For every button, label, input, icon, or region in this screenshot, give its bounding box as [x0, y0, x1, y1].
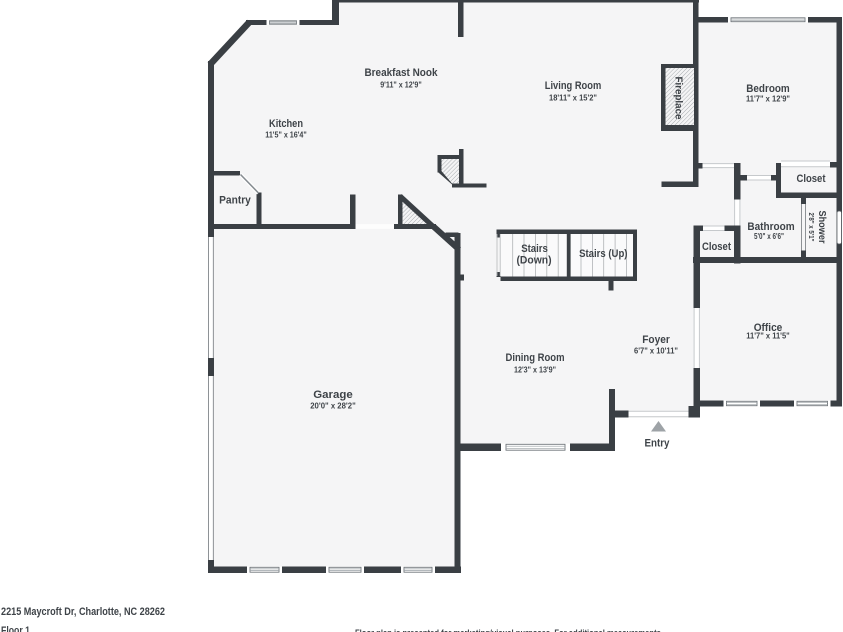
svg-text:Entry: Entry [645, 438, 670, 450]
svg-text:Pantry: Pantry [219, 195, 251, 207]
svg-text:11'7" x 11'5": 11'7" x 11'5" [746, 331, 790, 341]
svg-text:Fireplace: Fireplace [673, 77, 684, 120]
svg-text:11'5" x 16'4": 11'5" x 16'4" [265, 130, 307, 140]
svg-text:Stairs (Up): Stairs (Up) [579, 248, 627, 260]
svg-text:Closet: Closet [797, 173, 826, 185]
svg-text:Closet: Closet [702, 241, 731, 253]
svg-text:Garage: Garage [313, 389, 353, 401]
svg-text:Floor 1: Floor 1 [1, 625, 30, 632]
svg-text:2215 Maycroft Dr, Charlotte, N: 2215 Maycroft Dr, Charlotte, NC 28262 [1, 606, 165, 618]
svg-text:Living Room: Living Room [545, 80, 602, 92]
svg-text:12'3" x 13'9": 12'3" x 13'9" [514, 365, 556, 375]
svg-text:18'11" x 15'2": 18'11" x 15'2" [549, 93, 597, 103]
svg-text:Foyer: Foyer [642, 334, 670, 346]
svg-text:Shower: Shower [816, 211, 827, 244]
svg-text:11'7" x 12'9": 11'7" x 12'9" [746, 94, 790, 104]
svg-text:Breakfast Nook: Breakfast Nook [365, 67, 439, 79]
svg-text:(Down): (Down) [516, 255, 551, 267]
svg-text:5'0" x 6'6": 5'0" x 6'6" [754, 231, 784, 241]
svg-text:Kitchen: Kitchen [269, 118, 303, 130]
svg-text:2'8" x 5'1": 2'8" x 5'1" [807, 213, 816, 242]
svg-text:Floor plan is presented for ma: Floor plan is presented for marketing/vi… [355, 628, 663, 632]
svg-text:6'7" x 10'11": 6'7" x 10'11" [634, 346, 678, 356]
svg-text:9'11" x 12'9": 9'11" x 12'9" [380, 80, 422, 90]
svg-text:20'0" x 28'2": 20'0" x 28'2" [310, 401, 356, 411]
svg-text:Stairs: Stairs [521, 243, 548, 255]
svg-text:Dining Room: Dining Room [506, 352, 565, 364]
